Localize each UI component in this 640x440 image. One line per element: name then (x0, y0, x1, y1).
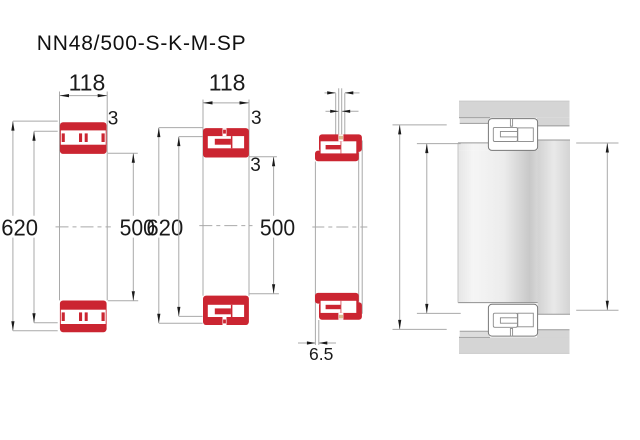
svg-text:118: 118 (69, 69, 106, 95)
svg-text:3: 3 (108, 109, 119, 130)
svg-text:620: 620 (1, 215, 38, 241)
svg-text:6.5: 6.5 (309, 344, 333, 364)
svg-text:3: 3 (250, 155, 261, 176)
svg-text:118: 118 (209, 69, 246, 95)
svg-text:620: 620 (146, 215, 183, 241)
svg-text:NN48/500-S-K-M-SP: NN48/500-S-K-M-SP (37, 32, 247, 55)
svg-text:3: 3 (251, 108, 262, 129)
svg-text:500: 500 (260, 214, 295, 240)
